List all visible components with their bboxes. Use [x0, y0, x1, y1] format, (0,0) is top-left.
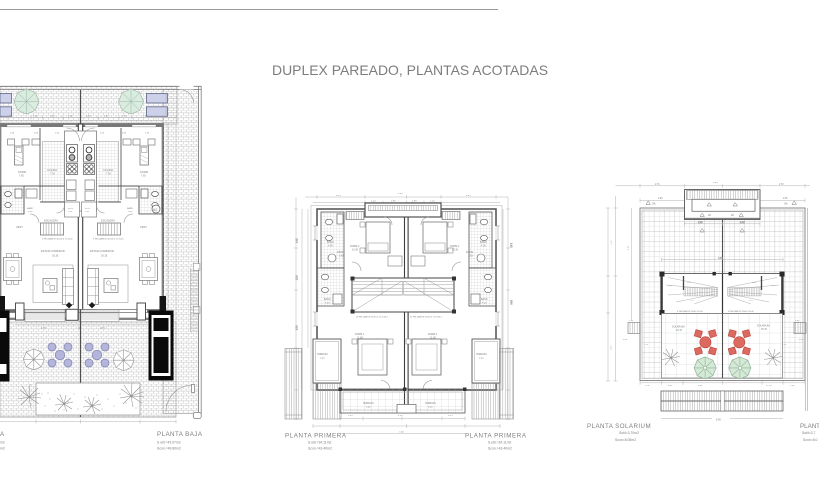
svg-text:2.05: 2.05: [658, 198, 663, 200]
svg-text:1.00: 1.00: [33, 115, 38, 117]
svg-text:2.66: 2.66: [8, 115, 13, 117]
svg-text:7.65: 7.65: [141, 175, 146, 178]
svg-text:16.35: 16.35: [52, 255, 59, 258]
svg-text:COCINA: COCINA: [47, 168, 57, 172]
svg-text:Scon.=49.80m2: Scon.=49.80m2: [157, 447, 181, 451]
svg-text:10.30: 10.30: [352, 249, 359, 252]
svg-text:14 PELDAÑOS 29x18.5 17.5x29.: 14 PELDAÑOS 29x18.5 17.5x29.5: [356, 316, 389, 319]
svg-text:1.92: 1.92: [104, 115, 109, 117]
svg-text:1.42: 1.42: [510, 243, 512, 248]
svg-text:1.42: 1.42: [297, 238, 299, 243]
svg-text:3.25: 3.25: [320, 358, 325, 360]
svg-text:1.13: 1.13: [348, 415, 353, 417]
svg-text:4.18: 4.18: [325, 302, 330, 304]
svg-text:4.00: 4.00: [481, 245, 486, 248]
svg-text:2.15: 2.15: [336, 195, 341, 197]
svg-text:4.05: 4.05: [713, 182, 718, 184]
svg-text:Sutil=3.7: Sutil=3.7: [802, 431, 815, 435]
svg-text:16.35: 16.35: [101, 255, 108, 258]
svg-text:BAÑO: BAÑO: [127, 207, 133, 210]
svg-text:16.70: 16.70: [676, 329, 683, 332]
svg-text:PLANTA PRIMERA: PLANTA PRIMERA: [285, 433, 347, 440]
svg-text:DORM: DORM: [18, 170, 26, 174]
svg-text:2.75: 2.75: [41, 327, 46, 330]
svg-text:1.00: 1.00: [122, 115, 127, 117]
svg-text:Sutil=3.70m2: Sutil=3.70m2: [619, 431, 639, 435]
svg-text:4.13: 4.13: [398, 415, 403, 417]
svg-text:m2: m2: [0, 447, 5, 451]
svg-text:3.05: 3.05: [428, 407, 433, 409]
svg-text:Scon.=43.40m2: Scon.=43.40m2: [308, 447, 332, 451]
svg-text:ESTAR-COMEDOR: ESTAR-COMEDOR: [90, 249, 114, 253]
svg-text:7.00: 7.00: [106, 173, 111, 176]
svg-text:4.18: 4.18: [482, 302, 487, 304]
svg-text:TERRAZA: TERRAZA: [476, 353, 487, 356]
svg-text:4 PELDAÑOS 29x30 17x30: 4 PELDAÑOS 29x30 17x30: [728, 310, 754, 313]
svg-text:TERRAZA: TERRAZA: [363, 402, 374, 405]
svg-text:ESCALERA: ESCALERA: [44, 219, 58, 223]
svg-text:7.08: 7.08: [718, 258, 723, 260]
svg-text:DUPLEX PAREADO, PLANTAS ACOTAD: DUPLEX PAREADO, PLANTAS ACOTADAS: [272, 62, 548, 78]
svg-text:17.56: 17.56: [766, 385, 772, 387]
svg-text:BAÑO: BAÑO: [324, 298, 331, 301]
svg-text:3.05: 3.05: [366, 407, 371, 409]
svg-text:0.76: 0.76: [297, 275, 299, 280]
svg-text:5.70: 5.70: [297, 325, 299, 330]
svg-text:2.05: 2.05: [783, 198, 788, 200]
svg-text:Scon.=43.40m2: Scon.=43.40m2: [488, 447, 512, 451]
svg-text:2.18: 2.18: [698, 222, 703, 224]
svg-text:S.util.=34.11m2: S.util.=34.11m2: [308, 441, 332, 445]
svg-text:TERRAZA: TERRAZA: [317, 353, 328, 356]
svg-text:Scon=8.0: Scon=8.0: [803, 438, 818, 442]
svg-text:A2: A2: [153, 207, 159, 212]
svg-text:PLANTA BAJA: PLANTA BAJA: [157, 431, 203, 438]
svg-text:2.28: 2.28: [628, 245, 630, 250]
svg-text:WTR: WTR: [68, 208, 73, 210]
svg-text:1.00: 1.00: [86, 115, 91, 117]
svg-text:1.40: 1.40: [391, 201, 396, 203]
svg-text:2.18: 2.18: [740, 222, 745, 224]
svg-text:1.13: 1.13: [448, 415, 453, 417]
svg-text:4 PELDAÑOS 29x30 17x30: 4 PELDAÑOS 29x30 17x30: [677, 310, 703, 313]
svg-text:3.83: 3.83: [339, 255, 344, 258]
svg-text:ESCALERA: ESCALERA: [101, 219, 115, 223]
svg-text:7.00: 7.00: [399, 431, 404, 433]
svg-text:1.00: 1.00: [68, 115, 73, 117]
svg-text:PLANTA SOLARIUM: PLANTA SOLARIUM: [587, 423, 651, 430]
svg-text:1.10: 1.10: [371, 201, 376, 203]
svg-text:5 PELDAÑOS 30x18.5 17.5x25: 5 PELDAÑOS 30x18.5 17.5x25: [42, 238, 73, 241]
svg-text:1.92: 1.92: [50, 115, 55, 117]
svg-text:4.00: 4.00: [328, 245, 333, 248]
svg-text:4.00: 4.00: [398, 193, 403, 195]
svg-text:1.40: 1.40: [412, 201, 417, 203]
svg-text:5.52: 5.52: [611, 240, 613, 245]
svg-text:S.util.=43.07m2: S.util.=43.07m2: [157, 441, 181, 445]
svg-text:PLANTA PRIMERA: PLANTA PRIMERA: [465, 433, 527, 440]
svg-text:5 PELDAÑOS 30x18.5 17.5x25: 5 PELDAÑOS 30x18.5 17.5x25: [93, 238, 124, 241]
svg-text:7.65: 7.65: [19, 175, 24, 178]
svg-text:PLANT: PLANT: [800, 423, 819, 430]
svg-text:2.66: 2.66: [143, 115, 148, 117]
svg-text:7.00: 7.00: [50, 173, 55, 176]
svg-text:14 PELDAÑOS 29x18.5 17.5x29.: 14 PELDAÑOS 29x18.5 17.5x29.5: [410, 316, 443, 319]
svg-text:3.43: 3.43: [611, 345, 613, 350]
svg-text:BAÑO: BAÑO: [481, 298, 488, 301]
svg-text:2.15: 2.15: [466, 195, 471, 197]
svg-text:16.70: 16.70: [761, 328, 768, 331]
svg-text:3.54: 3.54: [510, 300, 512, 305]
svg-text:m2: m2: [0, 441, 5, 445]
svg-text:2.70: 2.70: [779, 184, 784, 186]
svg-text:3.25: 3.25: [479, 358, 484, 360]
svg-text:DORM: DORM: [140, 170, 148, 174]
svg-text:COCINA: COCINA: [103, 168, 113, 172]
svg-text:2.75: 2.75: [100, 327, 105, 330]
svg-text:S.util.=34.11m2: S.util.=34.11m2: [488, 441, 512, 445]
svg-text:3.83: 3.83: [468, 255, 473, 258]
svg-text:TERRAZA: TERRAZA: [425, 402, 436, 405]
svg-text:2.70: 2.70: [655, 184, 660, 186]
svg-text:VEST: VEST: [16, 225, 23, 229]
svg-text:ESTAR-COMEDOR: ESTAR-COMEDOR: [41, 249, 65, 253]
svg-text:10.30: 10.30: [452, 249, 459, 252]
svg-text:6.99: 6.99: [716, 419, 721, 422]
svg-text:Scon=8.05m2: Scon=8.05m2: [615, 438, 636, 442]
svg-text:1.10: 1.10: [430, 201, 435, 203]
svg-text:VEST: VEST: [140, 225, 147, 229]
svg-text:BAÑO: BAÑO: [27, 207, 33, 210]
svg-text:WTR: WTR: [85, 208, 90, 210]
